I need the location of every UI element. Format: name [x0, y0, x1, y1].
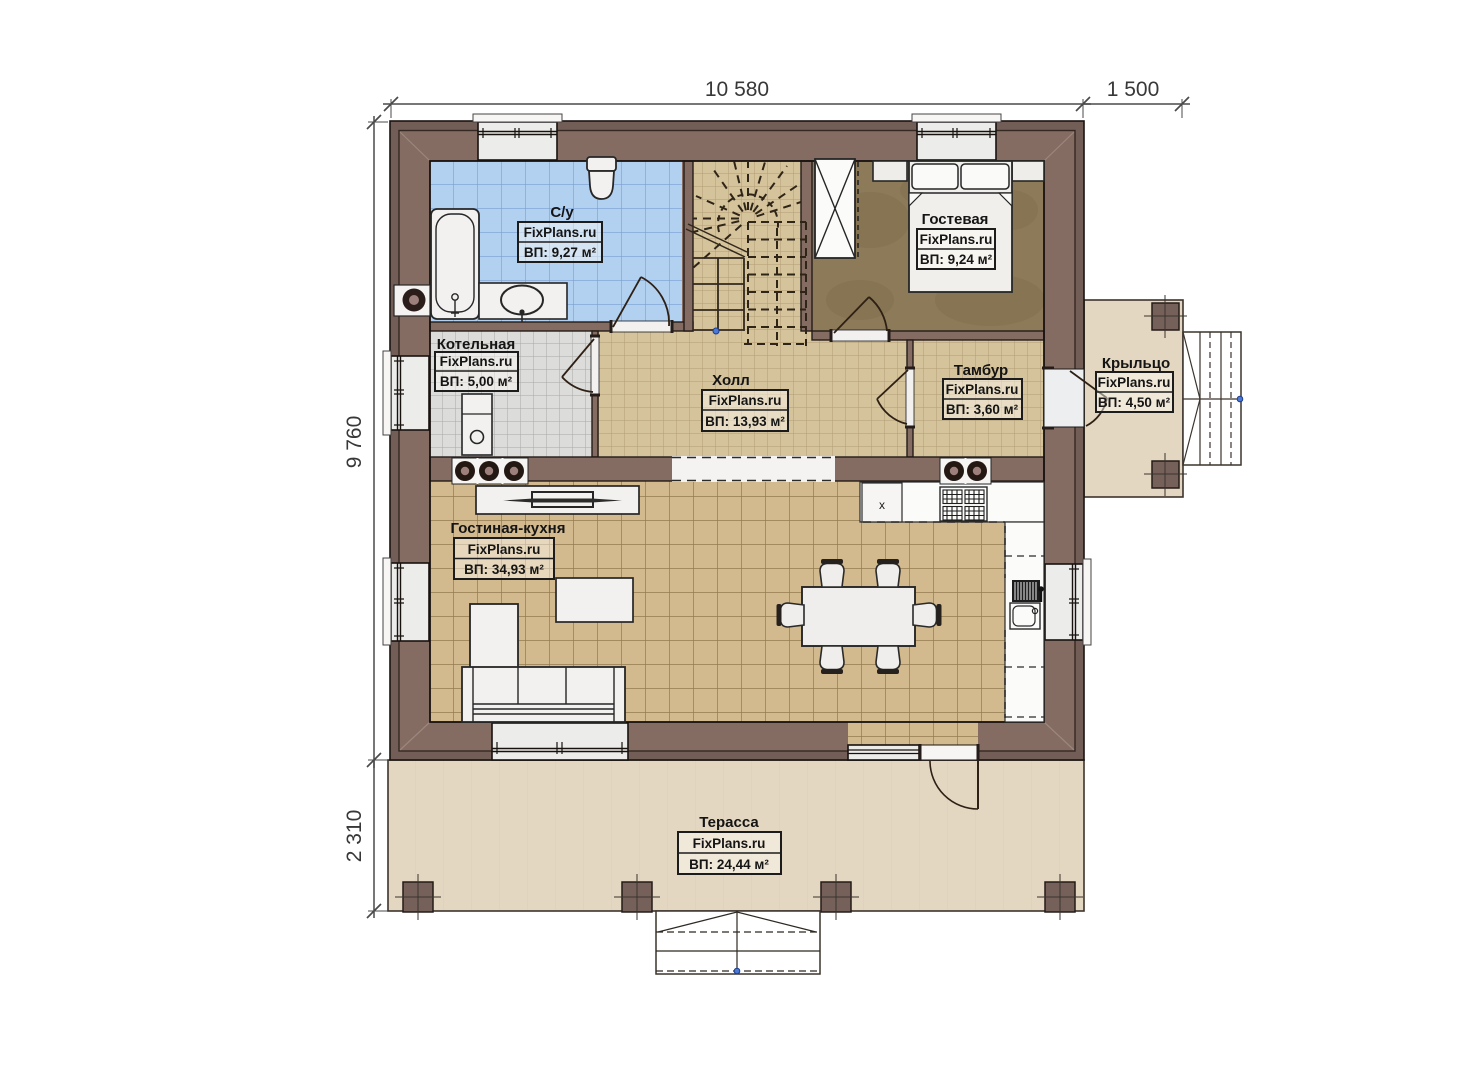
svg-text:ВП: 3,60 м²: ВП: 3,60 м²: [946, 402, 1019, 417]
svg-text:FixPlans.ru: FixPlans.ru: [440, 354, 513, 369]
svg-text:ВП: 34,93 м²: ВП: 34,93 м²: [464, 562, 544, 577]
svg-text:ВП: 4,50 м²: ВП: 4,50 м²: [1098, 395, 1171, 410]
svg-text:Крыльцо: Крыльцо: [1102, 355, 1170, 372]
svg-text:x: x: [879, 498, 885, 512]
svg-text:1 500: 1 500: [1107, 78, 1160, 101]
svg-text:ВП: 24,44 м²: ВП: 24,44 м²: [689, 857, 769, 872]
svg-text:Холл: Холл: [712, 372, 750, 389]
svg-text:FixPlans.ru: FixPlans.ru: [693, 836, 766, 851]
svg-text:FixPlans.ru: FixPlans.ru: [468, 542, 541, 557]
svg-text:2 310: 2 310: [343, 810, 366, 863]
svg-text:Тамбур: Тамбур: [954, 362, 1008, 379]
svg-text:С/у: С/у: [550, 204, 574, 221]
svg-text:FixPlans.ru: FixPlans.ru: [524, 225, 597, 240]
svg-text:Терасса: Терасса: [699, 814, 759, 831]
svg-text:ВП: 5,00 м²: ВП: 5,00 м²: [440, 374, 513, 389]
svg-text:Котельная: Котельная: [437, 336, 516, 353]
svg-text:FixPlans.ru: FixPlans.ru: [709, 393, 782, 408]
svg-text:9 760: 9 760: [343, 416, 366, 469]
svg-text:ВП: 13,93 м²: ВП: 13,93 м²: [705, 414, 785, 429]
svg-text:FixPlans.ru: FixPlans.ru: [920, 232, 993, 247]
svg-text:FixPlans.ru: FixPlans.ru: [946, 382, 1019, 397]
svg-text:ВП: 9,24 м²: ВП: 9,24 м²: [920, 252, 993, 267]
svg-text:Гостевая: Гостевая: [922, 211, 989, 228]
svg-text:10 580: 10 580: [705, 78, 769, 101]
svg-text:Гостиная-кухня: Гостиная-кухня: [451, 520, 566, 537]
svg-text:ВП: 9,27 м²: ВП: 9,27 м²: [524, 245, 597, 260]
svg-text:FixPlans.ru: FixPlans.ru: [1098, 375, 1171, 390]
